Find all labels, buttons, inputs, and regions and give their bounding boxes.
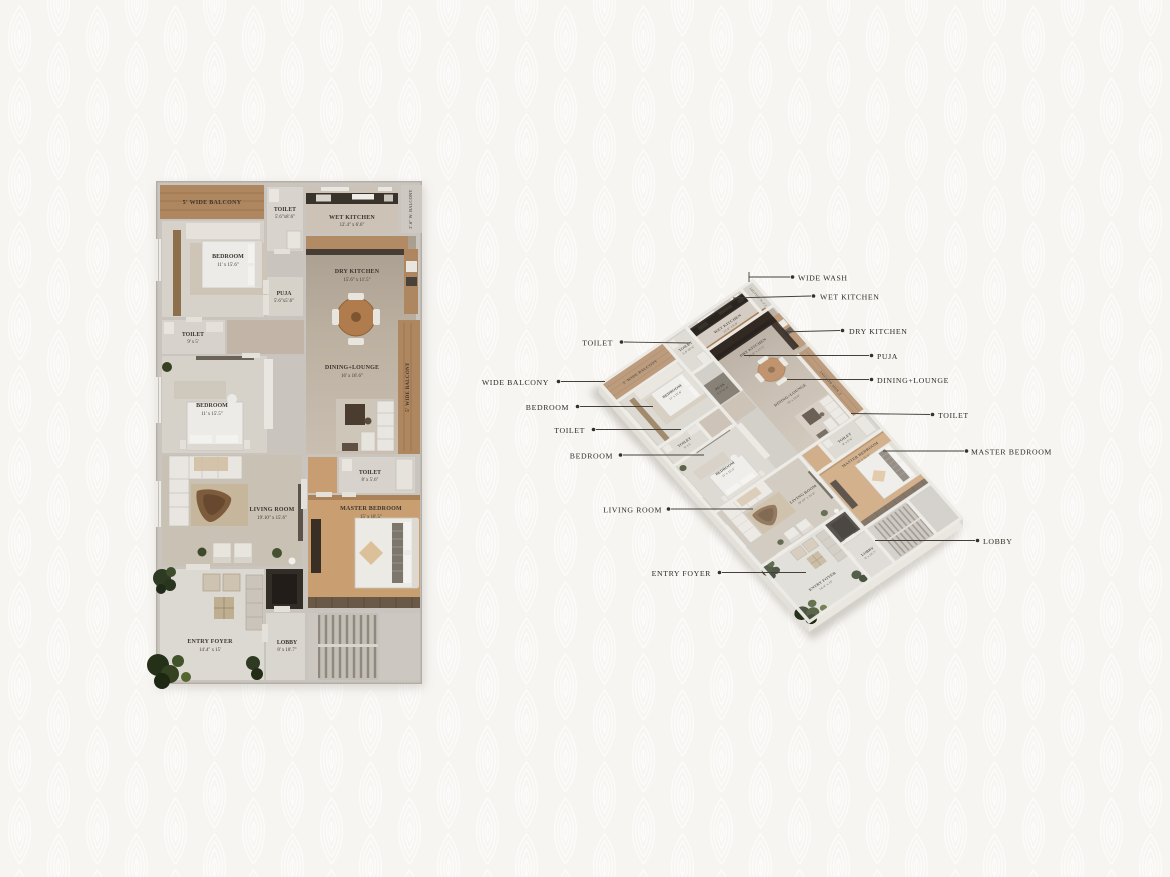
svg-text:TOILET: TOILET: [554, 426, 585, 435]
svg-text:BEDROOM: BEDROOM: [570, 452, 613, 461]
svg-text:WIDE BALCONY: WIDE BALCONY: [482, 378, 549, 387]
svg-text:MASTER BEDROOM: MASTER BEDROOM: [971, 448, 1052, 457]
svg-text:LOBBY: LOBBY: [983, 537, 1012, 546]
svg-text:ENTRY FOYER: ENTRY FOYER: [652, 569, 712, 578]
svg-text:WIDE WASH: WIDE WASH: [798, 274, 848, 283]
svg-text:LIVING ROOM: LIVING ROOM: [603, 506, 662, 515]
svg-text:WET KITCHEN: WET KITCHEN: [820, 293, 880, 302]
svg-text:TOILET: TOILET: [938, 411, 969, 420]
svg-text:PUJA: PUJA: [877, 352, 898, 361]
svg-text:BEDROOM: BEDROOM: [526, 403, 569, 412]
svg-text:TOILET: TOILET: [582, 339, 613, 348]
svg-text:DINING+LOUNGE: DINING+LOUNGE: [877, 376, 949, 385]
svg-text:DRY KITCHEN: DRY KITCHEN: [849, 327, 908, 336]
